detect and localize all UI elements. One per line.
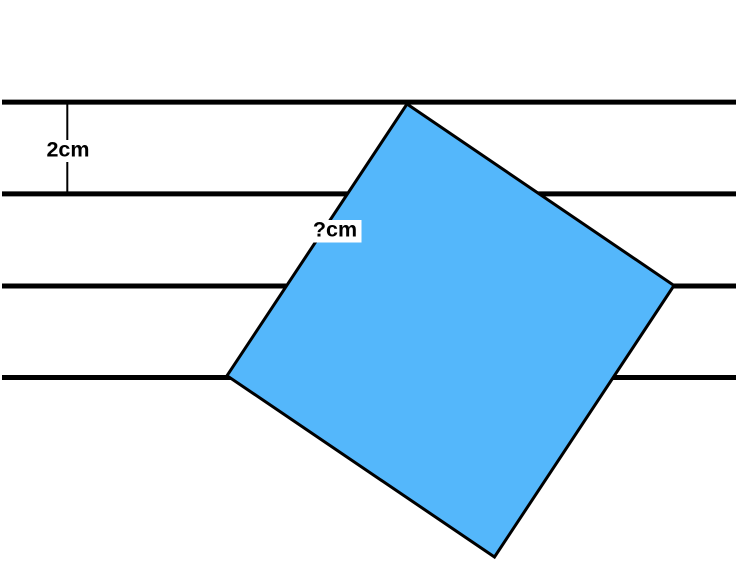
svg-text:2cm: 2cm: [46, 137, 89, 161]
svg-text:?cm: ?cm: [313, 218, 357, 242]
